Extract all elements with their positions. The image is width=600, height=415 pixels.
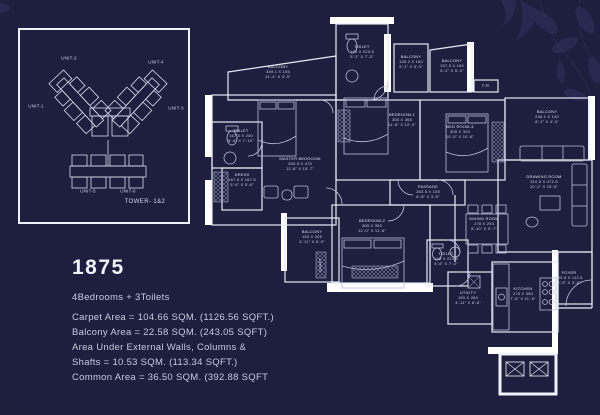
room-label-shaft: SHAFT: [319, 258, 324, 272]
room-label-dress: DRESS167.5 X 167.55'-6" X 5'-6": [228, 173, 256, 187]
room-label-toilet-left: TOILET167.5 X 2405'-6" X 7'-10": [228, 129, 254, 143]
room-label-kitchen: KITCHEN275 X 3507'-6" X 11'-6": [510, 287, 536, 301]
keyplan-tower-label: TOWER- 1&2: [125, 199, 166, 205]
balcony-area-line: Balcony Area = 22.58 SQM. (243.05 SQFT): [72, 325, 274, 340]
room-label-toilet-bottom: TOILET168 X 223.55'-6" X 7'-4": [434, 252, 458, 266]
room-label-balcony-top: BALCONY349.1 X 10511'-4" X 3'-5": [265, 65, 291, 79]
keyplan-unit-5: UNIT-5: [80, 189, 95, 194]
room-label-balcony-bl: BALCONY150 X 2054'-11" X 6'-9": [299, 230, 325, 244]
keyplan-unit-3: UNIT-3: [168, 106, 183, 111]
keyplan-unit-4: UNIT-4: [148, 60, 163, 65]
room-label-balcony-right: BALCONY246.1 X 1308'-1" X 4'-3": [535, 110, 559, 124]
common-area-line: Common Area = 36.50 SQM. (392.88 SQFT: [72, 370, 274, 385]
room-label-passage: PASSAGE263.5 X 1058'-8" X 3'-5": [416, 185, 440, 199]
room-label-dining-room: DINING ROOM178 X 2935'-10" X 9'-7": [469, 217, 499, 231]
room-label-foyer: FOYER105.5 X 112.53'-5" X 3'-8": [555, 271, 582, 285]
room-label-drawing-room: DRAWING ROOM310.5 X 472.510'-2" X 15'-6": [526, 175, 561, 189]
keyplan-box: UNIT-2 UNIT-4 UNIT-1 UNIT-3 UNIT-5 UNIT-…: [18, 28, 190, 224]
room-label-bedroom-1: BEDROOM-1350 X 36511'-6" X 12'-0": [388, 113, 416, 127]
area-info-block: 1875 4Bedrooms + 3Toilets Carpet Area = …: [72, 256, 274, 385]
external-walls-line: Area Under External Walls, Columns &: [72, 340, 274, 355]
keyplan-unit-2: UNIT-2: [61, 56, 76, 61]
room-label-balcony-tr2: BALCONY157.5 X 1605'-2" X 5'-3": [440, 59, 464, 73]
room-label-utility: UTILITY150 X 2604'-11" X 8'-6": [455, 291, 481, 305]
room-label-bedroom-2: BEDROOM-2365 X 35012'-0" X 11'-6": [358, 219, 386, 233]
room-label-master-bedroom: MASTER BEDROOM350.5 X 47511'-6" X 15'-7": [279, 157, 320, 171]
room-label-balcony-tr1: BALCONY155.2 X 1605'-1" X 5'-3": [399, 55, 423, 69]
floorplan-page: BALCONY349.1 X 10511'-4" X 3'-5" TOILET1…: [0, 0, 600, 415]
shafts-line: Shafts = 10.53 SQM. (113.34 SQFT.): [72, 355, 274, 370]
room-label-toilet-top: TOILET155 X 220.55'-1" X 7'-3": [350, 45, 374, 59]
keyplan-unit-6: UNIT-6: [120, 189, 135, 194]
plan-configuration: 4Bedrooms + 3Toilets: [72, 292, 274, 303]
carpet-area-line: Carpet Area = 104.66 SQM. (1126.56 SQFT.…: [72, 310, 274, 325]
keyplan-unit-1: UNIT-1: [28, 104, 43, 109]
room-label-cb: C.B.: [482, 84, 491, 89]
lift-block: [500, 354, 556, 394]
room-label-bedroom-3: BED ROOM-3305 X 32010'-0" X 10'-6": [446, 125, 474, 139]
plan-number: 1875: [72, 256, 274, 280]
